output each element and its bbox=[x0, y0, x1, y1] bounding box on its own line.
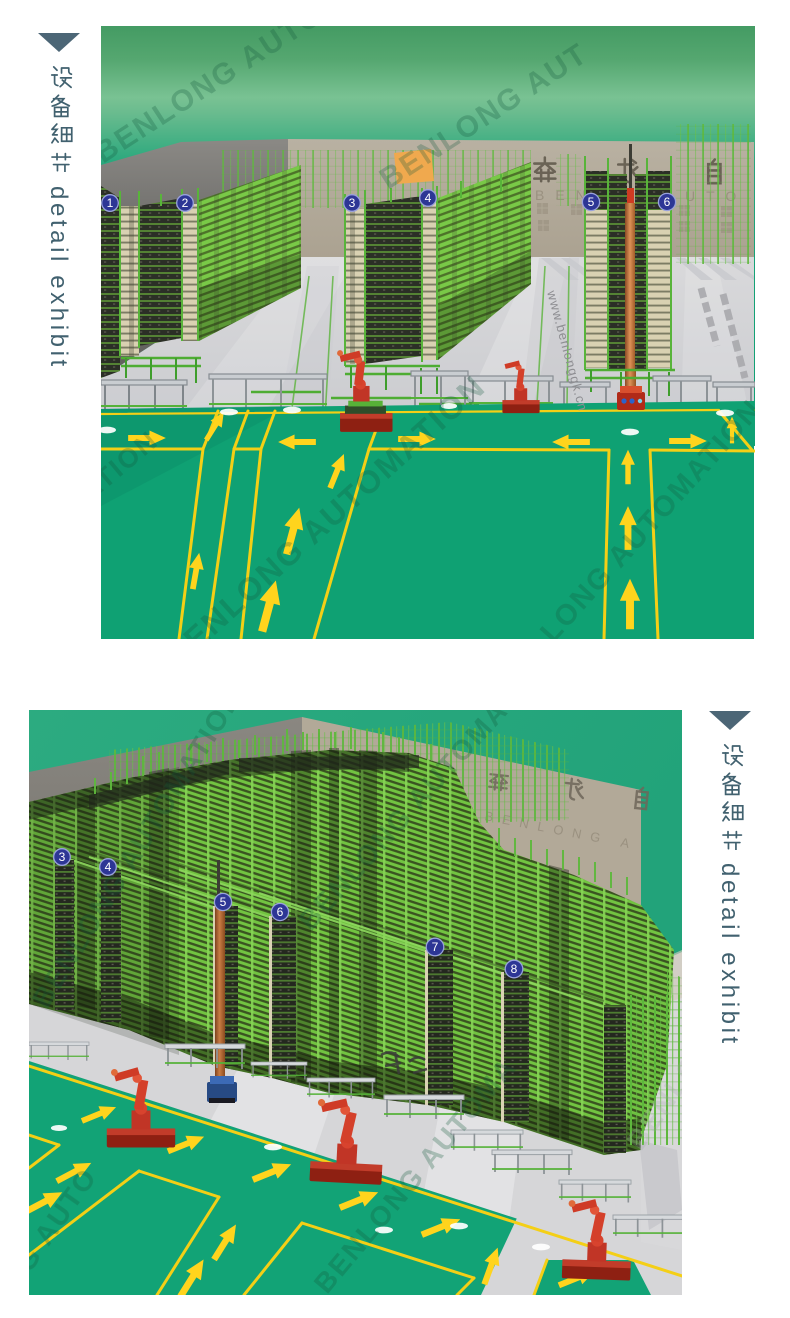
svg-text:1: 1 bbox=[107, 196, 114, 210]
svg-text:7: 7 bbox=[432, 940, 439, 954]
svg-text:8: 8 bbox=[511, 962, 518, 976]
svg-text:4: 4 bbox=[425, 191, 432, 205]
svg-text:6: 6 bbox=[664, 195, 671, 209]
svg-text:5: 5 bbox=[220, 895, 227, 909]
svg-text:2: 2 bbox=[182, 196, 189, 210]
svg-text:3: 3 bbox=[349, 196, 356, 210]
svg-text:3: 3 bbox=[59, 850, 66, 864]
svg-text:5: 5 bbox=[588, 195, 595, 209]
svg-text:6: 6 bbox=[277, 905, 284, 919]
